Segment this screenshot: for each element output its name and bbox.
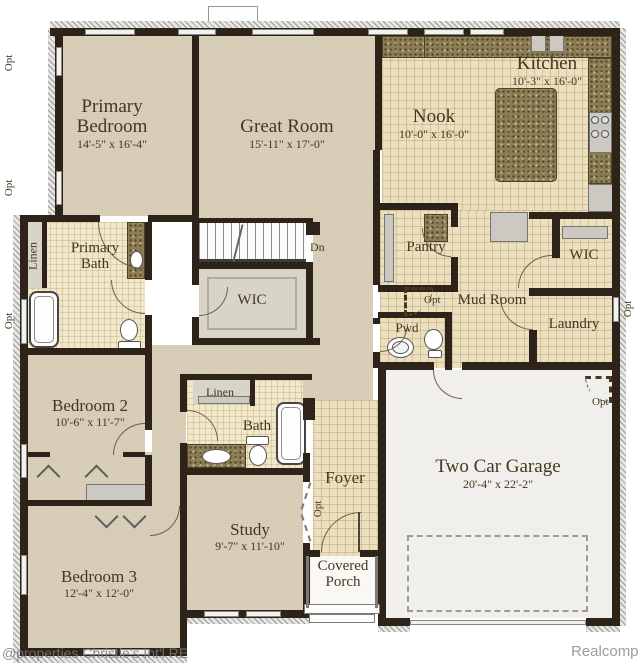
room-name: Nook <box>374 107 494 127</box>
window <box>56 47 62 76</box>
kitchen-island <box>495 88 557 182</box>
opt-door-label: Opt <box>312 501 324 518</box>
room-dims: 12'-4" x 12'-0" <box>34 587 164 600</box>
room-name: Two Car Garage <box>408 457 588 477</box>
mud-room-label: Mud Room <box>437 293 547 309</box>
room-name: Bedroom 2 <box>30 397 150 415</box>
watermark-realcomp: Realcomp <box>571 643 639 660</box>
wall <box>42 222 47 288</box>
exterior-hatch <box>180 618 310 624</box>
wall <box>303 398 315 420</box>
room-name: WIC <box>549 248 619 264</box>
laundry-label: Laundry <box>529 317 619 333</box>
window <box>368 29 408 35</box>
window <box>21 444 27 478</box>
room-name: Pantry <box>386 240 466 256</box>
window <box>178 29 216 35</box>
kitchen-label: Kitchen 10'-3" x 16'-0" <box>487 54 607 88</box>
wall <box>462 362 620 370</box>
window <box>252 29 314 35</box>
floor-plan: Primary Bedroom 14'-5" x 16'-4" Great Ro… <box>0 0 640 664</box>
wall <box>180 374 312 380</box>
wall <box>250 380 255 406</box>
great-room-label: Great Room 15'-11" x 17'-0" <box>212 117 362 151</box>
porch-step <box>304 604 380 614</box>
wall <box>373 150 380 285</box>
garage-label: Two Car Garage 20'-4" x 22'-2" <box>408 457 588 491</box>
study-label: Study 9'-7" x 11'-10" <box>195 521 305 552</box>
bedroom-2-label: Bedroom 2 10'-6" x 11'-7" <box>30 397 150 428</box>
room-dims: 9'-7" x 11'-10" <box>195 540 305 553</box>
pwd-label: Pwd <box>377 321 437 335</box>
wic-shelf <box>562 226 608 239</box>
room-name: Bath <box>227 419 287 435</box>
exterior-hatch <box>50 21 620 28</box>
exterior-hatch <box>378 626 410 632</box>
bedroom-3-label: Bedroom 3 12'-4" x 12'-0" <box>34 568 164 599</box>
room-name: Pwd <box>377 321 437 335</box>
room-name: Bedroom 3 <box>34 568 164 586</box>
wall <box>192 222 199 285</box>
bath-label: Bath <box>227 419 287 435</box>
wall <box>50 28 620 36</box>
opt-door-label: Opt <box>592 396 609 408</box>
stove-burner <box>591 116 599 124</box>
exterior-hatch <box>13 215 20 656</box>
room-name: Great Room <box>212 117 362 137</box>
window <box>21 299 27 344</box>
room-name: WIC <box>217 293 287 309</box>
wall <box>306 262 313 345</box>
stove-burner <box>601 130 609 138</box>
window <box>470 29 504 35</box>
mud-room-lockers <box>490 212 528 242</box>
window <box>246 611 281 617</box>
garage-door-threshold <box>410 620 586 625</box>
kitchen-counter <box>382 36 428 58</box>
wic-label: WIC <box>549 248 619 264</box>
front-door-leaf <box>358 512 360 552</box>
stove-burner <box>601 116 609 124</box>
wall <box>192 36 199 222</box>
wall <box>529 212 612 219</box>
toilet-tank <box>246 436 269 445</box>
wall <box>451 210 458 227</box>
stairs-dn-label: Dn <box>310 240 325 255</box>
opt-window-label: Opt <box>622 301 634 318</box>
primary-bath-label: Primary Bath <box>55 241 135 273</box>
room-dims: 20'-4" x 22'-2" <box>408 478 588 491</box>
wall <box>192 218 313 223</box>
opt-window-label: Opt <box>3 313 15 330</box>
porch-step <box>309 614 375 623</box>
room-name: Laundry <box>529 317 619 333</box>
wall <box>192 338 320 345</box>
wall <box>55 215 100 222</box>
refrigerator <box>588 184 614 212</box>
exterior-hatch <box>620 28 626 626</box>
wall <box>180 374 187 412</box>
staircase <box>199 223 306 262</box>
room-name: Mud Room <box>437 293 547 309</box>
toilet <box>249 445 267 466</box>
wall <box>445 312 452 370</box>
room-dims: 15'-11" x 17'-0" <box>212 138 362 151</box>
window <box>424 29 464 35</box>
wic-label: WIC <box>217 293 287 309</box>
room-dims: 14'-5" x 16'-4" <box>47 138 177 151</box>
linen-label: Linen <box>206 385 234 400</box>
room-name: Foyer <box>305 469 385 487</box>
covered-porch-label: Covered Porch <box>304 559 382 591</box>
room-dims: 10'-0" x 16'-0" <box>374 128 494 141</box>
wall <box>378 203 458 210</box>
wall <box>378 362 434 370</box>
window <box>56 171 62 205</box>
wall <box>180 468 187 616</box>
wall <box>192 317 199 345</box>
wall <box>145 222 152 280</box>
opt-door-label: Opt <box>424 294 441 306</box>
toilet-tank <box>428 350 442 358</box>
wall <box>180 468 310 475</box>
wall <box>373 352 380 368</box>
primary-bedroom-label: Primary Bedroom 14'-5" x 16'-4" <box>47 97 177 150</box>
wall <box>180 610 310 618</box>
stove-burner <box>591 130 599 138</box>
nook-label: Nook 10'-0" x 16'-0" <box>374 107 494 141</box>
room-name: Primary Bedroom <box>47 97 177 137</box>
opt-window-label: Opt <box>3 55 15 72</box>
room-dims: 10'-3" x 16'-0" <box>487 75 607 88</box>
wall <box>306 222 320 235</box>
wall <box>529 330 537 368</box>
room-name: Kitchen <box>487 54 607 74</box>
window <box>85 29 135 35</box>
pantry-label: Pantry <box>386 240 466 256</box>
bathtub <box>29 291 59 348</box>
wall <box>28 500 152 506</box>
room-name: Covered Porch <box>304 559 382 591</box>
garage-door-dashed-area <box>407 535 588 612</box>
sink <box>202 449 231 464</box>
wall <box>28 452 50 457</box>
linen-label: Linen <box>26 242 41 270</box>
room-name: Study <box>195 521 305 539</box>
window <box>204 611 239 617</box>
foyer-label: Foyer <box>305 469 385 487</box>
opt-window-label: Opt <box>3 180 15 197</box>
room-name: Primary Bath <box>55 241 135 273</box>
exterior-hatch <box>586 626 620 632</box>
window <box>21 555 27 595</box>
wall <box>192 262 313 269</box>
wall <box>145 455 152 506</box>
toilet <box>120 319 138 341</box>
wall <box>20 348 152 355</box>
watermark-brokerage: @properties Christie's Int'l RE <box>2 645 188 661</box>
room-dims: 10'-6" x 11'-7" <box>30 416 150 429</box>
